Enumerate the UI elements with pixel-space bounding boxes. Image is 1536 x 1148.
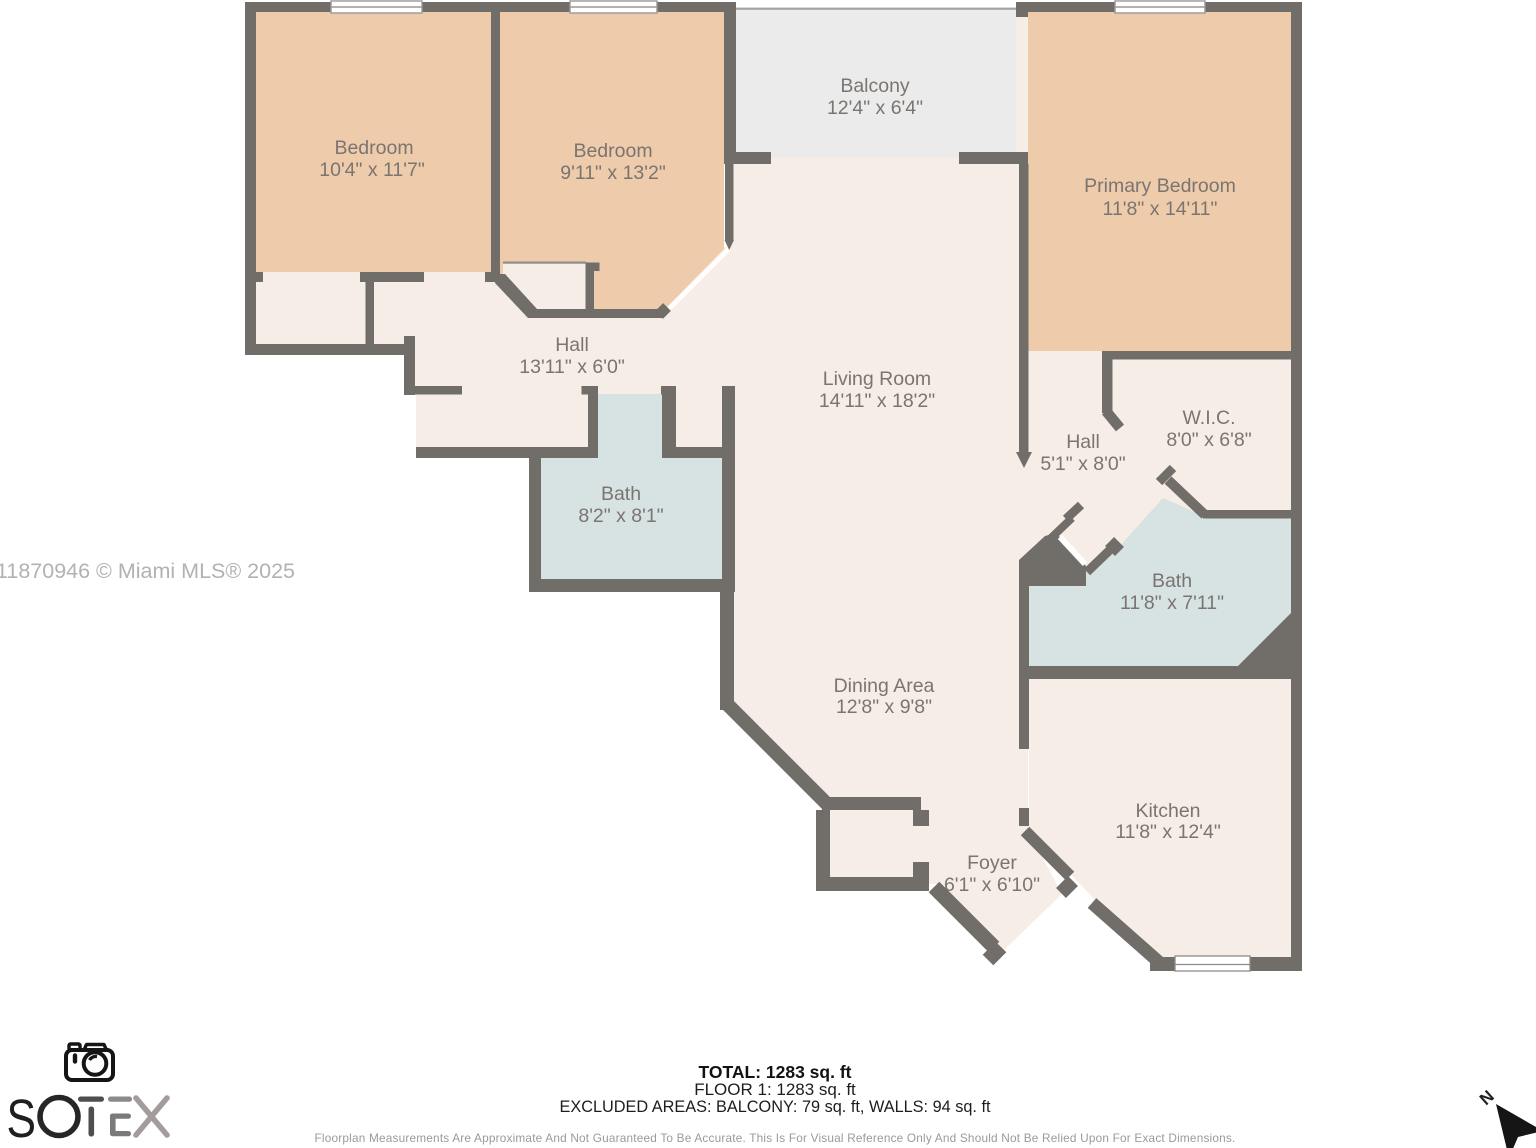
svg-text:11870946 © Miami MLS® 2025: 11870946 © Miami MLS® 2025 (0, 559, 295, 583)
svg-text:14'11" x 18'2": 14'11" x 18'2" (819, 390, 935, 412)
svg-text:Living Room: Living Room (823, 368, 931, 390)
svg-text:11'8" x 12'4": 11'8" x 12'4" (1115, 821, 1221, 843)
svg-text:Hall: Hall (1066, 431, 1100, 453)
svg-text:12'4" x 6'4": 12'4" x 6'4" (827, 97, 923, 119)
svg-text:6'1" x 6'10": 6'1" x 6'10" (944, 874, 1040, 896)
svg-text:11'8" x 14'11": 11'8" x 14'11" (1103, 198, 1218, 220)
svg-text:Dining Area: Dining Area (834, 675, 935, 697)
svg-text:8'0" x 6'8": 8'0" x 6'8" (1166, 429, 1251, 451)
svg-text:Hall: Hall (555, 334, 589, 356)
svg-text:Foyer: Foyer (967, 852, 1017, 874)
svg-text:Primary Bedroom: Primary Bedroom (1084, 175, 1236, 197)
svg-text:Floorplan Measurements Are App: Floorplan Measurements Are Approximate A… (315, 1131, 1236, 1145)
svg-text:5'1" x 8'0": 5'1" x 8'0" (1040, 453, 1125, 475)
svg-text:FLOOR 1: 1283 sq. ft: FLOOR 1: 1283 sq. ft (694, 1080, 856, 1099)
svg-text:EXCLUDED AREAS: BALCONY: 79 sq: EXCLUDED AREAS: BALCONY: 79 sq. ft, WALL… (559, 1098, 990, 1116)
svg-text:Bedroom: Bedroom (573, 140, 652, 162)
svg-text:13'11" x 6'0": 13'11" x 6'0" (519, 356, 625, 378)
svg-text:12'8" x 9'8": 12'8" x 9'8" (836, 696, 932, 718)
svg-text:9'11" x 13'2": 9'11" x 13'2" (560, 162, 666, 184)
svg-text:S: S (7, 1089, 37, 1148)
svg-text:TOTAL: 1283 sq. ft: TOTAL: 1283 sq. ft (699, 1062, 852, 1082)
svg-text:Kitchen: Kitchen (1135, 800, 1200, 822)
svg-text:Bath: Bath (601, 483, 641, 505)
svg-text:Bedroom: Bedroom (334, 137, 413, 159)
svg-text:8'2" x 8'1": 8'2" x 8'1" (578, 505, 663, 527)
svg-text:W.I.C.: W.I.C. (1182, 407, 1235, 429)
svg-text:Balcony: Balcony (840, 75, 910, 97)
svg-text:Bath: Bath (1152, 570, 1192, 592)
svg-text:11'8" x 7'11": 11'8" x 7'11" (1120, 592, 1224, 614)
svg-text:10'4" x 11'7": 10'4" x 11'7" (319, 159, 425, 181)
